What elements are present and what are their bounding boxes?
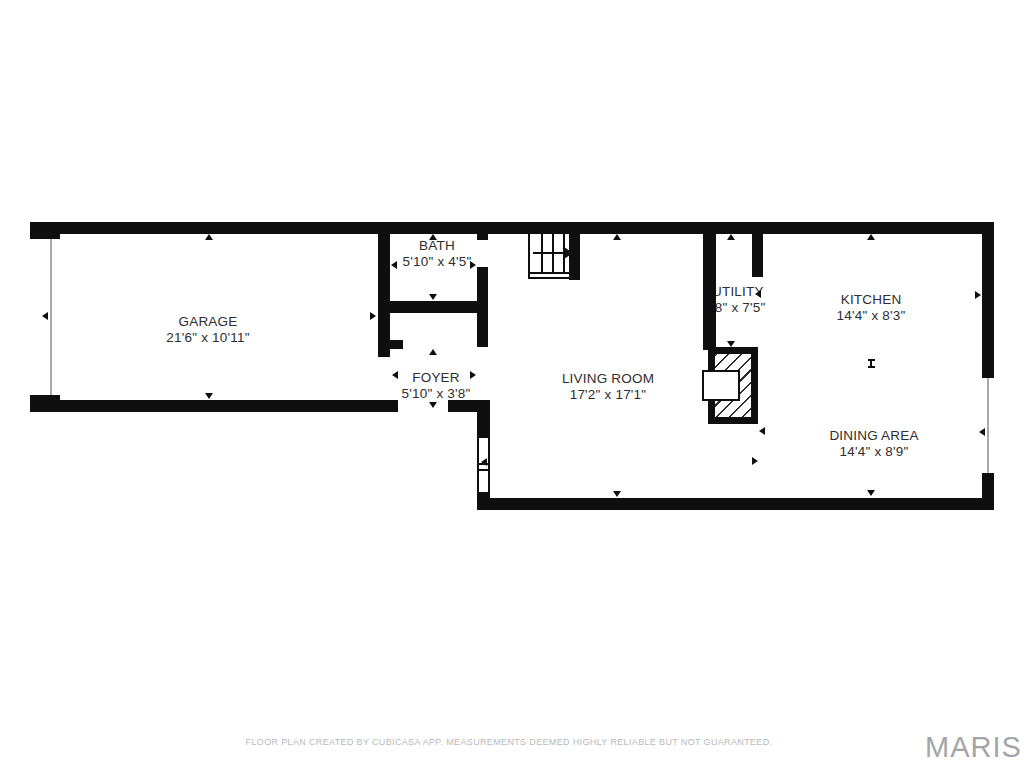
dimension-tick — [391, 261, 397, 269]
room-dimensions: '8" x 7'5" — [712, 300, 766, 316]
dimension-tick — [752, 457, 758, 465]
room-dimensions: 5'10" x 4'5" — [403, 254, 472, 270]
wall-stairs-right — [569, 233, 580, 280]
wall-living-left-upper — [477, 400, 490, 436]
dimension-tick — [613, 234, 621, 240]
dimension-tick — [205, 234, 213, 240]
room-name: LIVING ROOM — [562, 371, 654, 387]
room-dimensions: 17'2" x 17'1" — [562, 387, 654, 403]
wall-utility-left — [703, 233, 716, 350]
wall-bath-right — [477, 267, 488, 347]
wall-living-left-lower — [477, 494, 490, 510]
room-name: KITCHEN — [837, 292, 906, 308]
room-label-foyer: FOYER 5'10" x 3'8" — [402, 370, 471, 402]
room-dimensions: 14'4" x 8'3" — [837, 308, 906, 324]
kitchen-dining-divider-tick — [868, 359, 875, 368]
room-label-bath: BATH 5'10" x 4'5" — [403, 238, 472, 270]
dimension-tick — [470, 371, 476, 379]
staircase — [528, 233, 571, 279]
fireplace-opening — [702, 370, 740, 401]
dimension-tick — [481, 458, 487, 466]
floor-plan: GARAGE 21'6" x 10'11" BATH 5'10" x 4'5" … — [0, 0, 1024, 768]
dimension-tick — [759, 427, 765, 435]
dimension-tick — [979, 428, 985, 436]
wall-bath-right-stub — [477, 232, 488, 240]
dimension-tick — [205, 393, 213, 399]
dimension-tick — [727, 341, 735, 347]
dimension-tick — [867, 234, 875, 240]
dimension-tick — [42, 312, 48, 320]
stair-direction-arrow — [533, 252, 566, 254]
wall-garage-corner-top — [30, 222, 60, 239]
room-label-living-room: LIVING ROOM 17'2" x 17'1" — [562, 371, 654, 403]
room-name: FOYER — [402, 370, 471, 386]
dimension-tick — [755, 290, 761, 298]
window-line-right — [987, 378, 989, 473]
dimension-tick — [867, 490, 875, 496]
wall-bottom-main — [477, 498, 994, 510]
room-label-kitchen: KITCHEN 14'4" x 8'3" — [837, 292, 906, 324]
dimension-tick — [470, 261, 476, 269]
room-dimensions: 21'6" x 10'11" — [166, 330, 249, 346]
wall-top — [30, 222, 993, 234]
wall-garage-bottom — [30, 400, 398, 412]
room-label-utility: UTILITY '8" x 7'5" — [712, 284, 766, 316]
room-label-dining-area: DINING AREA 14'4" x 8'9" — [829, 428, 918, 460]
dimension-tick — [727, 234, 735, 240]
window-mullion — [479, 469, 488, 471]
dimension-tick — [429, 294, 437, 300]
garage-door-line — [50, 239, 52, 395]
room-label-garage: GARAGE 21'6" x 10'11" — [166, 314, 249, 346]
dimension-tick — [429, 402, 437, 408]
dimension-tick — [429, 234, 437, 240]
room-name: DINING AREA — [829, 428, 918, 444]
dimension-tick — [613, 491, 621, 497]
stair-landing-line — [530, 272, 571, 274]
dimension-tick — [370, 312, 376, 320]
dimension-tick — [429, 349, 437, 355]
wall-right-upper — [982, 222, 994, 378]
room-name: BATH — [403, 238, 472, 254]
wall-foyer-top-stub — [390, 340, 403, 349]
room-name: GARAGE — [166, 314, 249, 330]
wall-garage-corner-bottom — [30, 395, 60, 412]
disclaimer-text: FLOOR PLAN CREATED BY CUBICASA APP. MEAS… — [246, 737, 773, 747]
wall-utility-right — [752, 233, 763, 277]
wall-garage-right — [378, 222, 390, 357]
dimension-tick — [392, 371, 398, 379]
maris-logo: MARIS — [925, 731, 1022, 764]
room-dimensions: 14'4" x 8'9" — [829, 444, 918, 460]
dimension-tick — [975, 291, 981, 299]
wall-bath-bottom — [378, 301, 488, 313]
